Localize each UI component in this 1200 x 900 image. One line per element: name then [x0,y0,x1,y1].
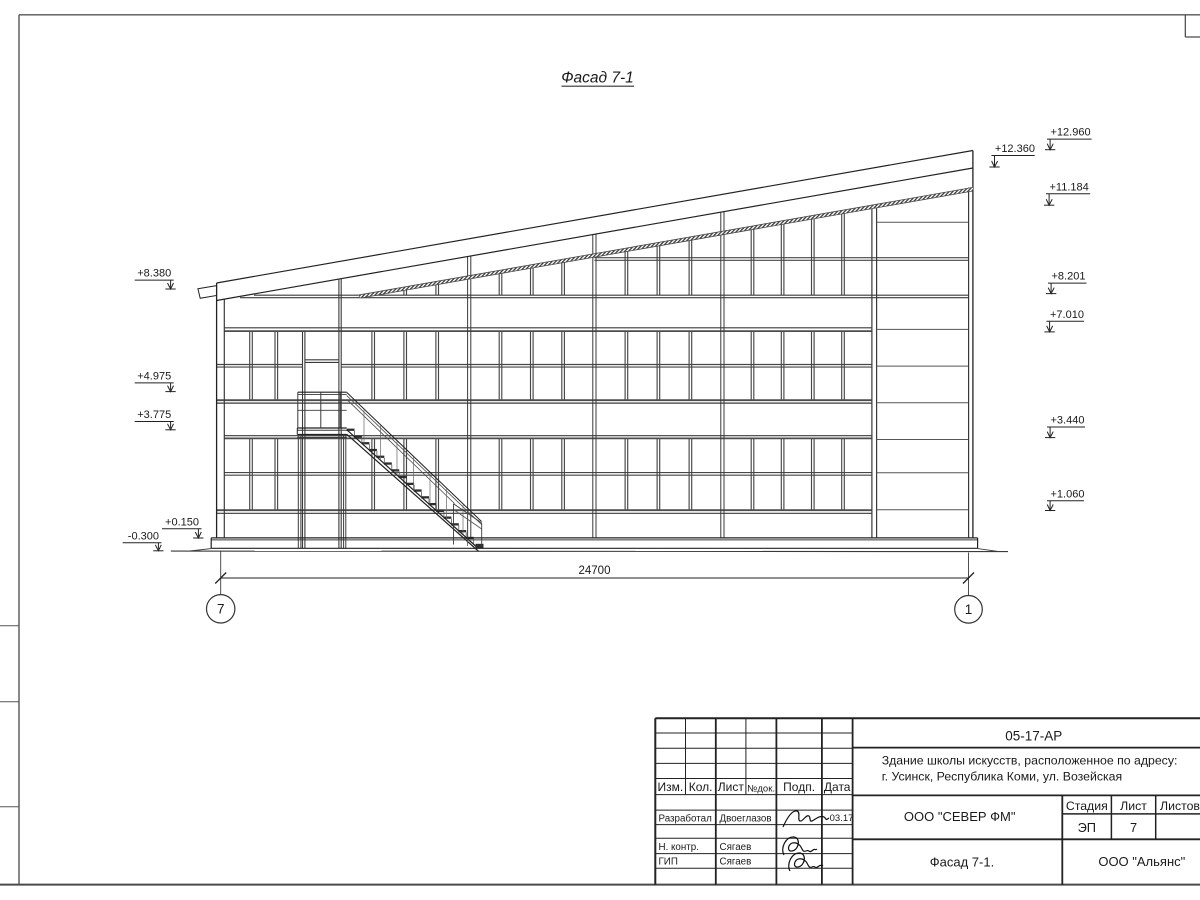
svg-text:1: 1 [965,602,973,617]
svg-text:Н. контр.: Н. контр. [659,842,699,853]
svg-text:ГИП: ГИП [659,857,678,868]
svg-text:7: 7 [217,602,225,617]
svg-text:03.17: 03.17 [830,813,854,824]
svg-text:Листов: Листов [1160,799,1200,813]
svg-text:ООО "СЕВЕР ФМ": ООО "СЕВЕР ФМ" [904,809,1016,824]
svg-text:Сягаев: Сягаев [720,842,752,853]
svg-text:Разработал: Разработал [659,813,713,824]
svg-text:+0.150: +0.150 [165,516,199,528]
svg-text:+12.360: +12.360 [995,143,1035,155]
svg-text:+7.010: +7.010 [1050,309,1084,321]
svg-text:Изм.: Изм. [658,780,684,794]
svg-text:Подп.: Подп. [783,780,815,794]
svg-text:ЭП: ЭП [1078,820,1096,835]
svg-text:Фасад 7-1: Фасад 7-1 [561,70,634,87]
svg-text:+12.960: +12.960 [1051,127,1091,139]
svg-text:+8.380: +8.380 [137,268,171,280]
svg-text:ООО "Альянс": ООО "Альянс" [1098,854,1185,869]
svg-text:+11.184: +11.184 [1050,181,1089,193]
svg-text:Кол.: Кол. [689,780,713,794]
svg-text:Двоеглазов: Двоеглазов [720,813,772,824]
svg-text:Фасад 7-1.: Фасад 7-1. [930,855,994,870]
svg-text:Дата: Дата [824,780,851,794]
svg-text:7: 7 [1130,820,1137,835]
svg-text:+4.975: +4.975 [137,371,171,383]
svg-text:Здание школы искусств, располо: Здание школы искусств, расположенное по … [882,753,1178,767]
svg-text:24700: 24700 [579,565,611,577]
svg-text:Лист: Лист [1120,799,1147,813]
svg-text:г. Усинск, Республика Коми, ул: г. Усинск, Республика Коми, ул. Возейска… [882,770,1122,784]
svg-text:Сягаев: Сягаев [720,857,752,868]
svg-text:+8.201: +8.201 [1052,271,1086,283]
svg-text:+3.440: +3.440 [1051,415,1085,427]
svg-text:+1.060: +1.060 [1051,488,1085,500]
svg-text:№док.: №док. [747,784,775,795]
svg-text:+3.775: +3.775 [137,409,171,421]
svg-text:Лист: Лист [718,780,745,794]
svg-text:-0.300: -0.300 [128,530,159,542]
svg-text:05-17-АР: 05-17-АР [1005,729,1062,744]
svg-text:Стадия: Стадия [1066,799,1108,813]
